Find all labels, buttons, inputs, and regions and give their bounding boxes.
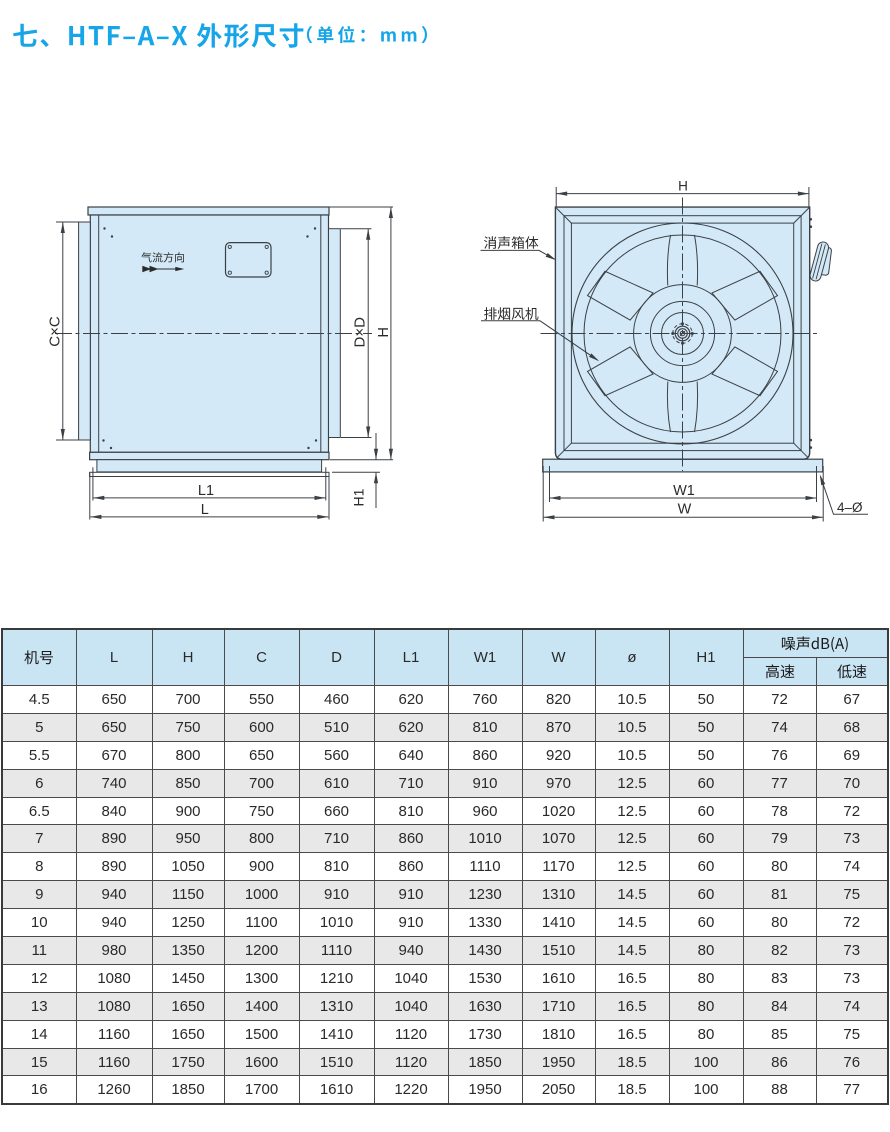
svg-text:H1: H1 — [351, 488, 367, 506]
svg-text:L1: L1 — [198, 483, 214, 499]
svg-text:W: W — [678, 502, 692, 518]
svg-text:4–Ø: 4–Ø — [837, 500, 863, 515]
svg-text:L: L — [201, 502, 209, 518]
svg-text:H: H — [376, 327, 392, 337]
svg-text:C×C: C×C — [47, 316, 64, 347]
svg-text:H: H — [678, 178, 688, 193]
svg-text:W1: W1 — [673, 483, 695, 499]
svg-text:D×D: D×D — [352, 317, 369, 348]
